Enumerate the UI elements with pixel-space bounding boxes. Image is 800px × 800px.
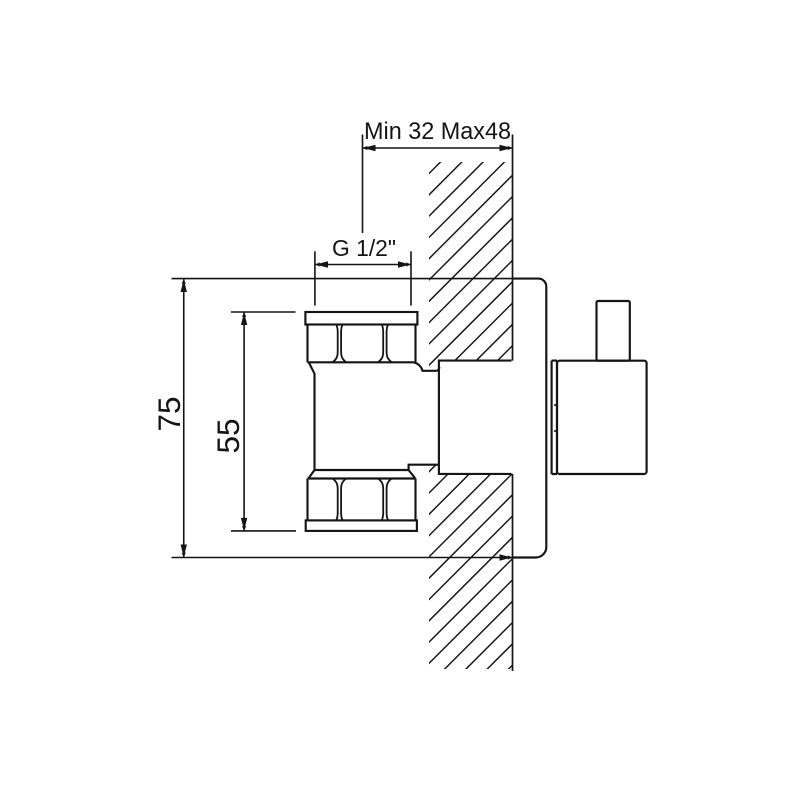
svg-text:Min 32 Max48: Min 32 Max48 [364,118,511,145]
svg-text:G 1/2": G 1/2" [332,235,396,261]
svg-text:55: 55 [210,418,246,453]
svg-text:75: 75 [151,396,187,431]
